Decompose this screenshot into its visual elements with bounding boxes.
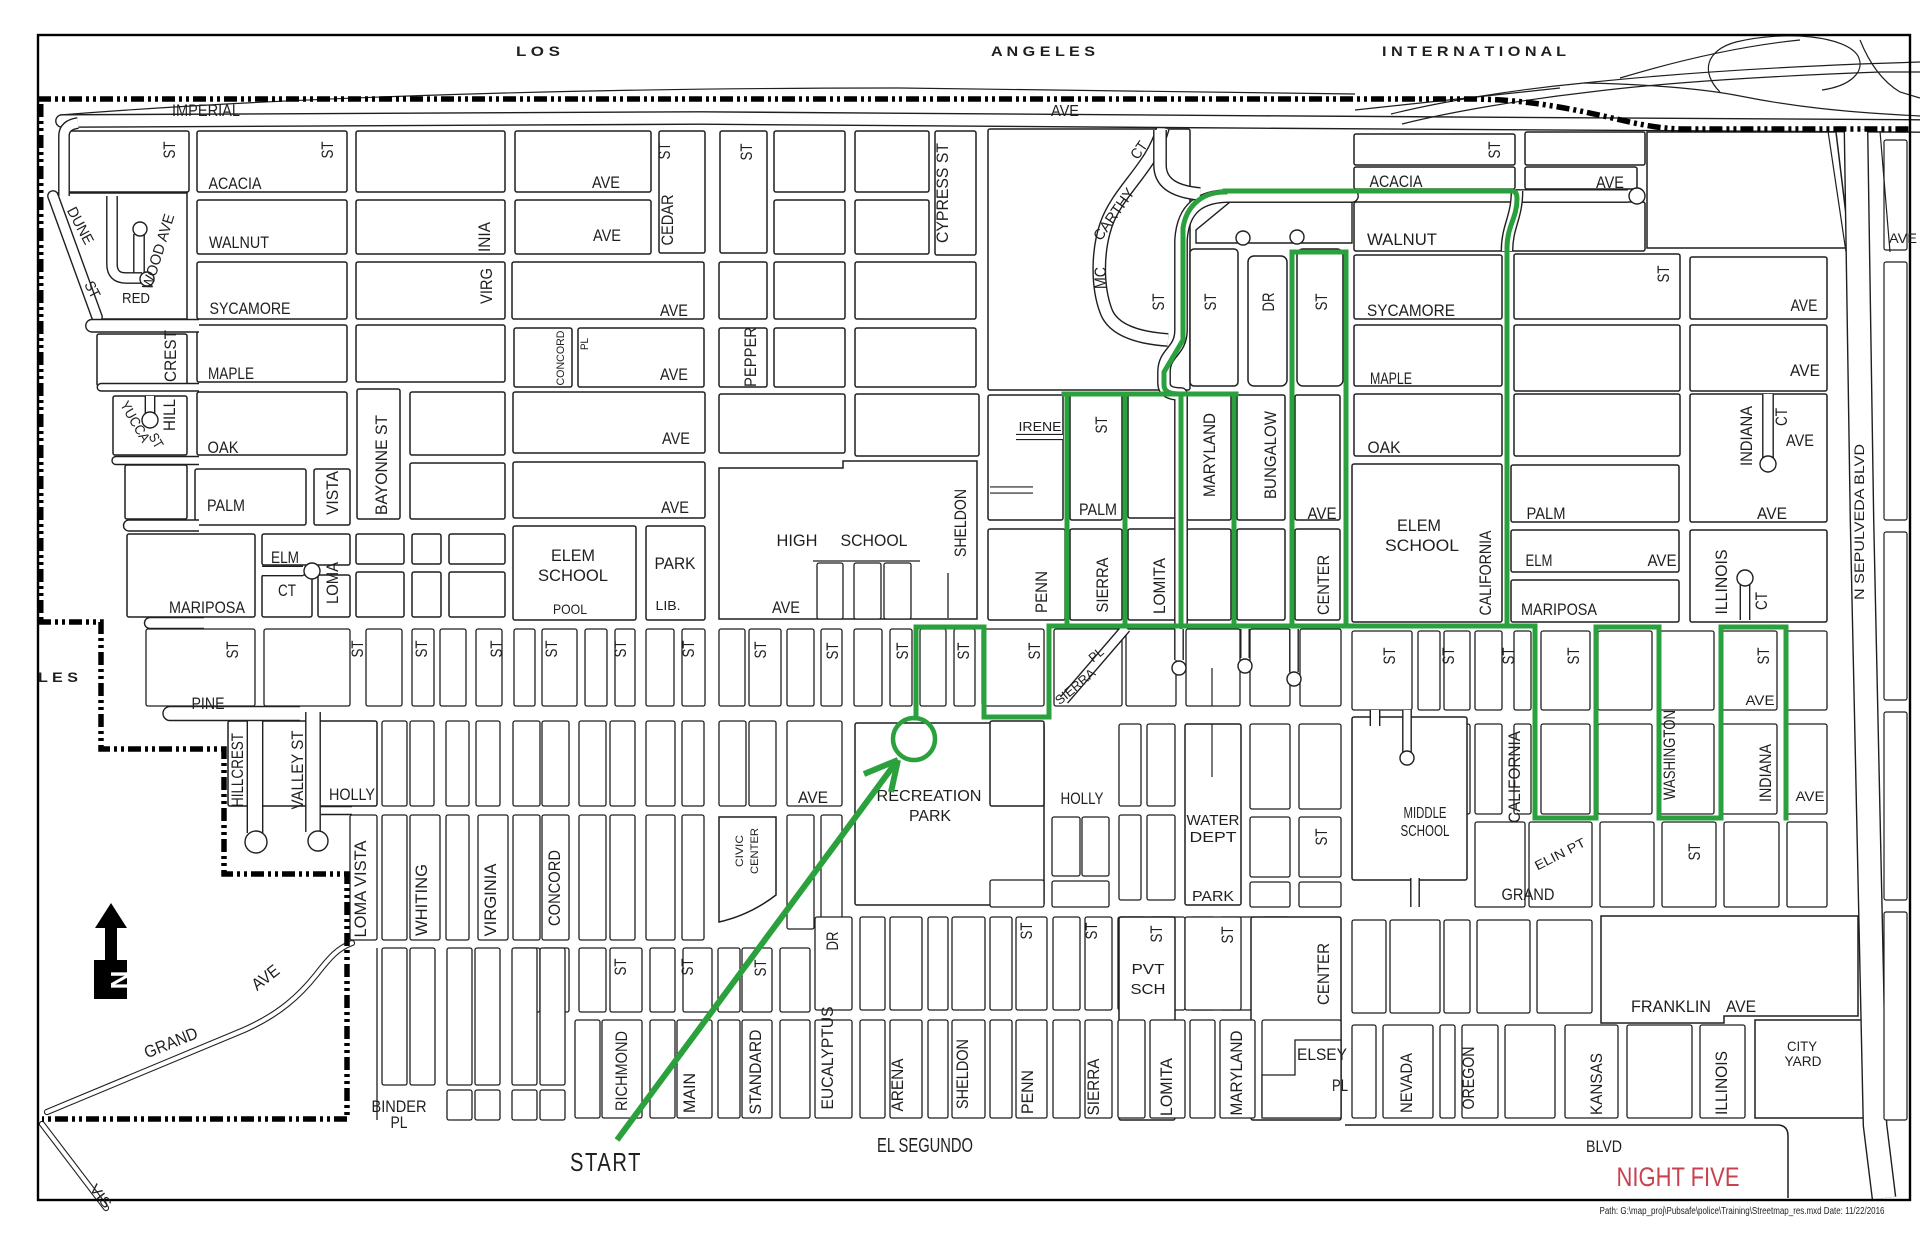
svg-text:ST: ST	[1313, 294, 1331, 311]
svg-text:HILL: HILL	[161, 399, 179, 431]
svg-text:ST: ST	[752, 960, 770, 977]
svg-text:ST: ST	[752, 642, 770, 659]
svg-text:CENTER: CENTER	[1315, 943, 1333, 1005]
svg-text:ST: ST	[955, 643, 973, 660]
svg-text:ST: ST	[1655, 266, 1673, 283]
svg-text:PARK: PARK	[655, 554, 697, 573]
svg-text:DR: DR	[824, 931, 842, 950]
svg-text:CEDAR: CEDAR	[659, 194, 677, 245]
svg-text:L E S: L E S	[38, 669, 78, 685]
svg-text:HOLLY: HOLLY	[329, 786, 375, 804]
svg-text:HIGH: HIGH	[777, 531, 818, 550]
svg-text:GRAND: GRAND	[1502, 886, 1555, 904]
svg-text:PALM: PALM	[1527, 505, 1566, 523]
svg-text:OAK: OAK	[208, 439, 239, 457]
svg-text:HILLCREST: HILLCREST	[229, 733, 247, 807]
svg-text:STANDARD: STANDARD	[747, 1029, 765, 1114]
svg-text:AVE: AVE	[1596, 174, 1624, 192]
svg-text:AVE: AVE	[662, 430, 690, 448]
svg-text:MARIPOSA: MARIPOSA	[169, 599, 245, 617]
svg-text:PL: PL	[579, 338, 591, 350]
svg-text:ILLINOIS: ILLINOIS	[1713, 1051, 1731, 1115]
svg-text:AVE: AVE	[661, 499, 689, 517]
svg-text:AVE: AVE	[1648, 552, 1677, 570]
svg-text:ST: ST	[1500, 648, 1518, 665]
svg-text:ST: ST	[612, 641, 630, 658]
svg-text:PEPPER: PEPPER	[742, 327, 760, 387]
svg-text:SYCAMORE: SYCAMORE	[1367, 302, 1455, 320]
svg-text:ST: ST	[543, 641, 561, 658]
svg-text:MARIPOSA: MARIPOSA	[1521, 601, 1597, 619]
svg-text:SCHOOL: SCHOOL	[538, 566, 608, 585]
svg-text:ST: ST	[1150, 294, 1168, 311]
svg-text:SHELDON: SHELDON	[954, 1039, 972, 1109]
svg-text:CT: CT	[278, 582, 296, 600]
svg-text:ELM: ELM	[1526, 552, 1553, 570]
svg-text:CREST: CREST	[162, 330, 180, 382]
svg-text:INIA: INIA	[476, 222, 494, 252]
svg-text:WASHINGTON: WASHINGTON	[1661, 710, 1679, 800]
svg-text:NIGHT FIVE: NIGHT FIVE	[1617, 1162, 1740, 1192]
svg-text:WHITING: WHITING	[413, 864, 431, 936]
svg-text:L O S: L O S	[516, 43, 560, 59]
svg-text:EL SEGUNDO: EL SEGUNDO	[877, 1135, 973, 1157]
svg-text:ST: ST	[1565, 648, 1583, 665]
svg-text:CITY: CITY	[1787, 1038, 1818, 1054]
svg-text:CENTER: CENTER	[749, 828, 761, 874]
svg-text:ELEM: ELEM	[551, 546, 595, 565]
svg-text:MARYLAND: MARYLAND	[1228, 1030, 1246, 1115]
svg-text:ST: ST	[161, 142, 179, 159]
svg-text:ST: ST	[1026, 643, 1044, 660]
svg-text:YARD: YARD	[1785, 1053, 1822, 1069]
svg-text:BUNGALOW: BUNGALOW	[1262, 411, 1280, 499]
svg-text:MC: MC	[1092, 267, 1110, 289]
svg-text:KANSAS: KANSAS	[1588, 1053, 1606, 1115]
svg-text:ST: ST	[488, 641, 506, 658]
svg-text:ST: ST	[1486, 142, 1504, 159]
svg-text:IRENE: IRENE	[1019, 419, 1062, 434]
svg-text:MIDDLE: MIDDLE	[1404, 805, 1447, 822]
svg-text:PINE: PINE	[192, 695, 225, 713]
svg-text:ST: ST	[612, 959, 630, 976]
svg-text:CT: CT	[1773, 408, 1791, 426]
svg-text:SCHOOL: SCHOOL	[1385, 536, 1459, 555]
svg-text:LOMA VISTA: LOMA VISTA	[352, 841, 370, 938]
svg-text:VIRGINIA: VIRGINIA	[482, 864, 500, 937]
svg-text:MARYLAND: MARYLAND	[1201, 413, 1219, 497]
svg-text:LOMITA: LOMITA	[1151, 558, 1169, 614]
svg-text:AVE: AVE	[798, 789, 828, 807]
svg-text:ST: ST	[679, 959, 697, 976]
svg-text:AVE: AVE	[1786, 432, 1814, 450]
svg-text:SCHOOL: SCHOOL	[841, 531, 908, 550]
svg-text:BLVD: BLVD	[1586, 1137, 1622, 1156]
svg-text:EUCALYPTUS: EUCALYPTUS	[819, 1007, 837, 1110]
svg-text:ELEM: ELEM	[1397, 516, 1441, 535]
svg-text:AVE: AVE	[1889, 230, 1917, 246]
svg-text:ELSEY: ELSEY	[1297, 1046, 1347, 1064]
svg-text:MAPLE: MAPLE	[208, 365, 254, 383]
svg-text:A N G E L E S: A N G E L E S	[991, 43, 1095, 59]
svg-text:DEPT: DEPT	[1190, 829, 1237, 846]
svg-text:CYPRESS ST: CYPRESS ST	[934, 143, 952, 243]
svg-text:ST: ST	[319, 142, 337, 159]
svg-text:PENN: PENN	[1019, 1070, 1037, 1114]
svg-text:ACACIA: ACACIA	[1370, 173, 1423, 191]
svg-text:PARK: PARK	[1192, 888, 1234, 905]
svg-text:CONCORD: CONCORD	[546, 850, 564, 926]
svg-text:ST: ST	[413, 641, 431, 658]
svg-text:ST: ST	[656, 143, 674, 160]
svg-text:ARENA: ARENA	[889, 1059, 907, 1112]
svg-text:RED: RED	[122, 290, 150, 307]
svg-text:ST: ST	[680, 641, 698, 658]
svg-text:ST: ST	[1083, 923, 1101, 940]
svg-text:PL: PL	[391, 1114, 408, 1132]
svg-text:ST: ST	[1381, 648, 1399, 665]
svg-text:VIRG: VIRG	[478, 268, 496, 304]
svg-text:AVE: AVE	[1051, 103, 1079, 120]
svg-text:ST: ST	[1686, 844, 1704, 861]
svg-text:SYCAMORE: SYCAMORE	[210, 300, 291, 318]
svg-text:VISTA: VISTA	[324, 471, 342, 515]
svg-text:CENTER: CENTER	[1315, 555, 1333, 615]
svg-text:FRANKLIN: FRANKLIN	[1631, 998, 1711, 1016]
svg-text:ILLINOIS: ILLINOIS	[1713, 550, 1731, 615]
svg-text:AVE: AVE	[593, 227, 621, 245]
svg-text:WATER: WATER	[1187, 812, 1240, 829]
svg-text:IMPERIAL: IMPERIAL	[172, 101, 240, 120]
svg-text:ST: ST	[1440, 648, 1458, 665]
svg-text:ELM: ELM	[271, 549, 299, 567]
svg-text:ST: ST	[824, 643, 842, 660]
svg-text:AVE: AVE	[1791, 297, 1818, 315]
svg-text:PARK: PARK	[909, 808, 951, 825]
svg-text:N SEPULVEDA BLVD: N SEPULVEDA BLVD	[1851, 444, 1867, 600]
svg-text:LIB.: LIB.	[656, 598, 681, 613]
svg-text:AVE: AVE	[592, 174, 620, 192]
svg-text:ST: ST	[1202, 294, 1220, 311]
svg-text:CONCORD: CONCORD	[555, 330, 567, 385]
svg-text:WALNUT: WALNUT	[1367, 231, 1437, 249]
svg-text:ST: ST	[349, 641, 367, 658]
svg-text:ACACIA: ACACIA	[209, 175, 262, 193]
svg-text:ST: ST	[1219, 927, 1237, 944]
svg-text:AVE: AVE	[772, 599, 800, 617]
svg-text:AVE: AVE	[1308, 505, 1337, 523]
svg-text:ST: ST	[224, 642, 242, 659]
svg-text:CALIFORNIA: CALIFORNIA	[1477, 531, 1495, 616]
svg-text:INDIANA: INDIANA	[1738, 406, 1756, 466]
svg-text:VALLEY ST: VALLEY ST	[289, 731, 307, 810]
svg-text:ST: ST	[894, 643, 912, 660]
svg-text:PL: PL	[1332, 1077, 1348, 1095]
svg-text:CALIFORNIA: CALIFORNIA	[1506, 731, 1524, 823]
svg-text:AVE: AVE	[1796, 788, 1825, 804]
svg-text:POOL: POOL	[553, 601, 587, 617]
svg-text:OAK: OAK	[1368, 439, 1401, 457]
svg-text:AVE: AVE	[660, 366, 688, 384]
svg-text:MAPLE: MAPLE	[1370, 370, 1412, 388]
svg-text:ST: ST	[738, 144, 756, 161]
svg-text:AVE: AVE	[1790, 362, 1820, 380]
svg-text:N: N	[105, 971, 135, 990]
svg-text:AVE: AVE	[1757, 505, 1787, 523]
svg-text:SIERRA: SIERRA	[1094, 558, 1112, 613]
svg-text:CT: CT	[1753, 592, 1771, 610]
svg-text:AVE: AVE	[1746, 692, 1775, 708]
svg-text:RICHMOND: RICHMOND	[613, 1031, 631, 1111]
svg-text:SHELDON: SHELDON	[952, 489, 970, 557]
svg-text:PALM: PALM	[1079, 501, 1117, 519]
svg-text:CIVIC: CIVIC	[734, 835, 746, 867]
svg-text:AVE: AVE	[660, 302, 688, 320]
svg-text:HOLLY: HOLLY	[1061, 790, 1104, 808]
svg-text:NEVADA: NEVADA	[1398, 1053, 1416, 1113]
svg-text:ST: ST	[1018, 923, 1036, 940]
svg-text:START: START	[570, 1147, 642, 1177]
svg-text:AVE: AVE	[1726, 998, 1756, 1016]
svg-text:PVT: PVT	[1132, 961, 1165, 978]
svg-text:WALNUT: WALNUT	[209, 234, 269, 252]
svg-text:OREGON: OREGON	[1460, 1047, 1478, 1110]
svg-text:LOMITA: LOMITA	[1158, 1058, 1176, 1116]
svg-text:ST: ST	[1755, 648, 1773, 665]
svg-text:INDIANA: INDIANA	[1757, 744, 1775, 802]
svg-text:ST: ST	[1148, 926, 1166, 943]
svg-text:MAIN: MAIN	[681, 1073, 699, 1113]
svg-text:DR: DR	[1260, 292, 1278, 311]
svg-text:LOMA: LOMA	[324, 562, 342, 604]
svg-text:PALM: PALM	[207, 497, 245, 515]
svg-text:ST: ST	[1093, 417, 1111, 434]
svg-text:I N T E R N A T I O N A L: I N T E R N A T I O N A L	[1382, 43, 1567, 59]
svg-text:Path: G:\map_proj\Pubsafe\poli: Path: G:\map_proj\Pubsafe\police\Trainin…	[1600, 1206, 1885, 1217]
svg-text:ST: ST	[1313, 829, 1331, 846]
svg-text:PENN: PENN	[1033, 571, 1051, 613]
svg-text:SCHOOL: SCHOOL	[1401, 823, 1450, 840]
svg-text:BAYONNE ST: BAYONNE ST	[373, 415, 391, 515]
svg-text:SIERRA: SIERRA	[1085, 1059, 1103, 1116]
svg-text:SCH: SCH	[1131, 981, 1166, 998]
